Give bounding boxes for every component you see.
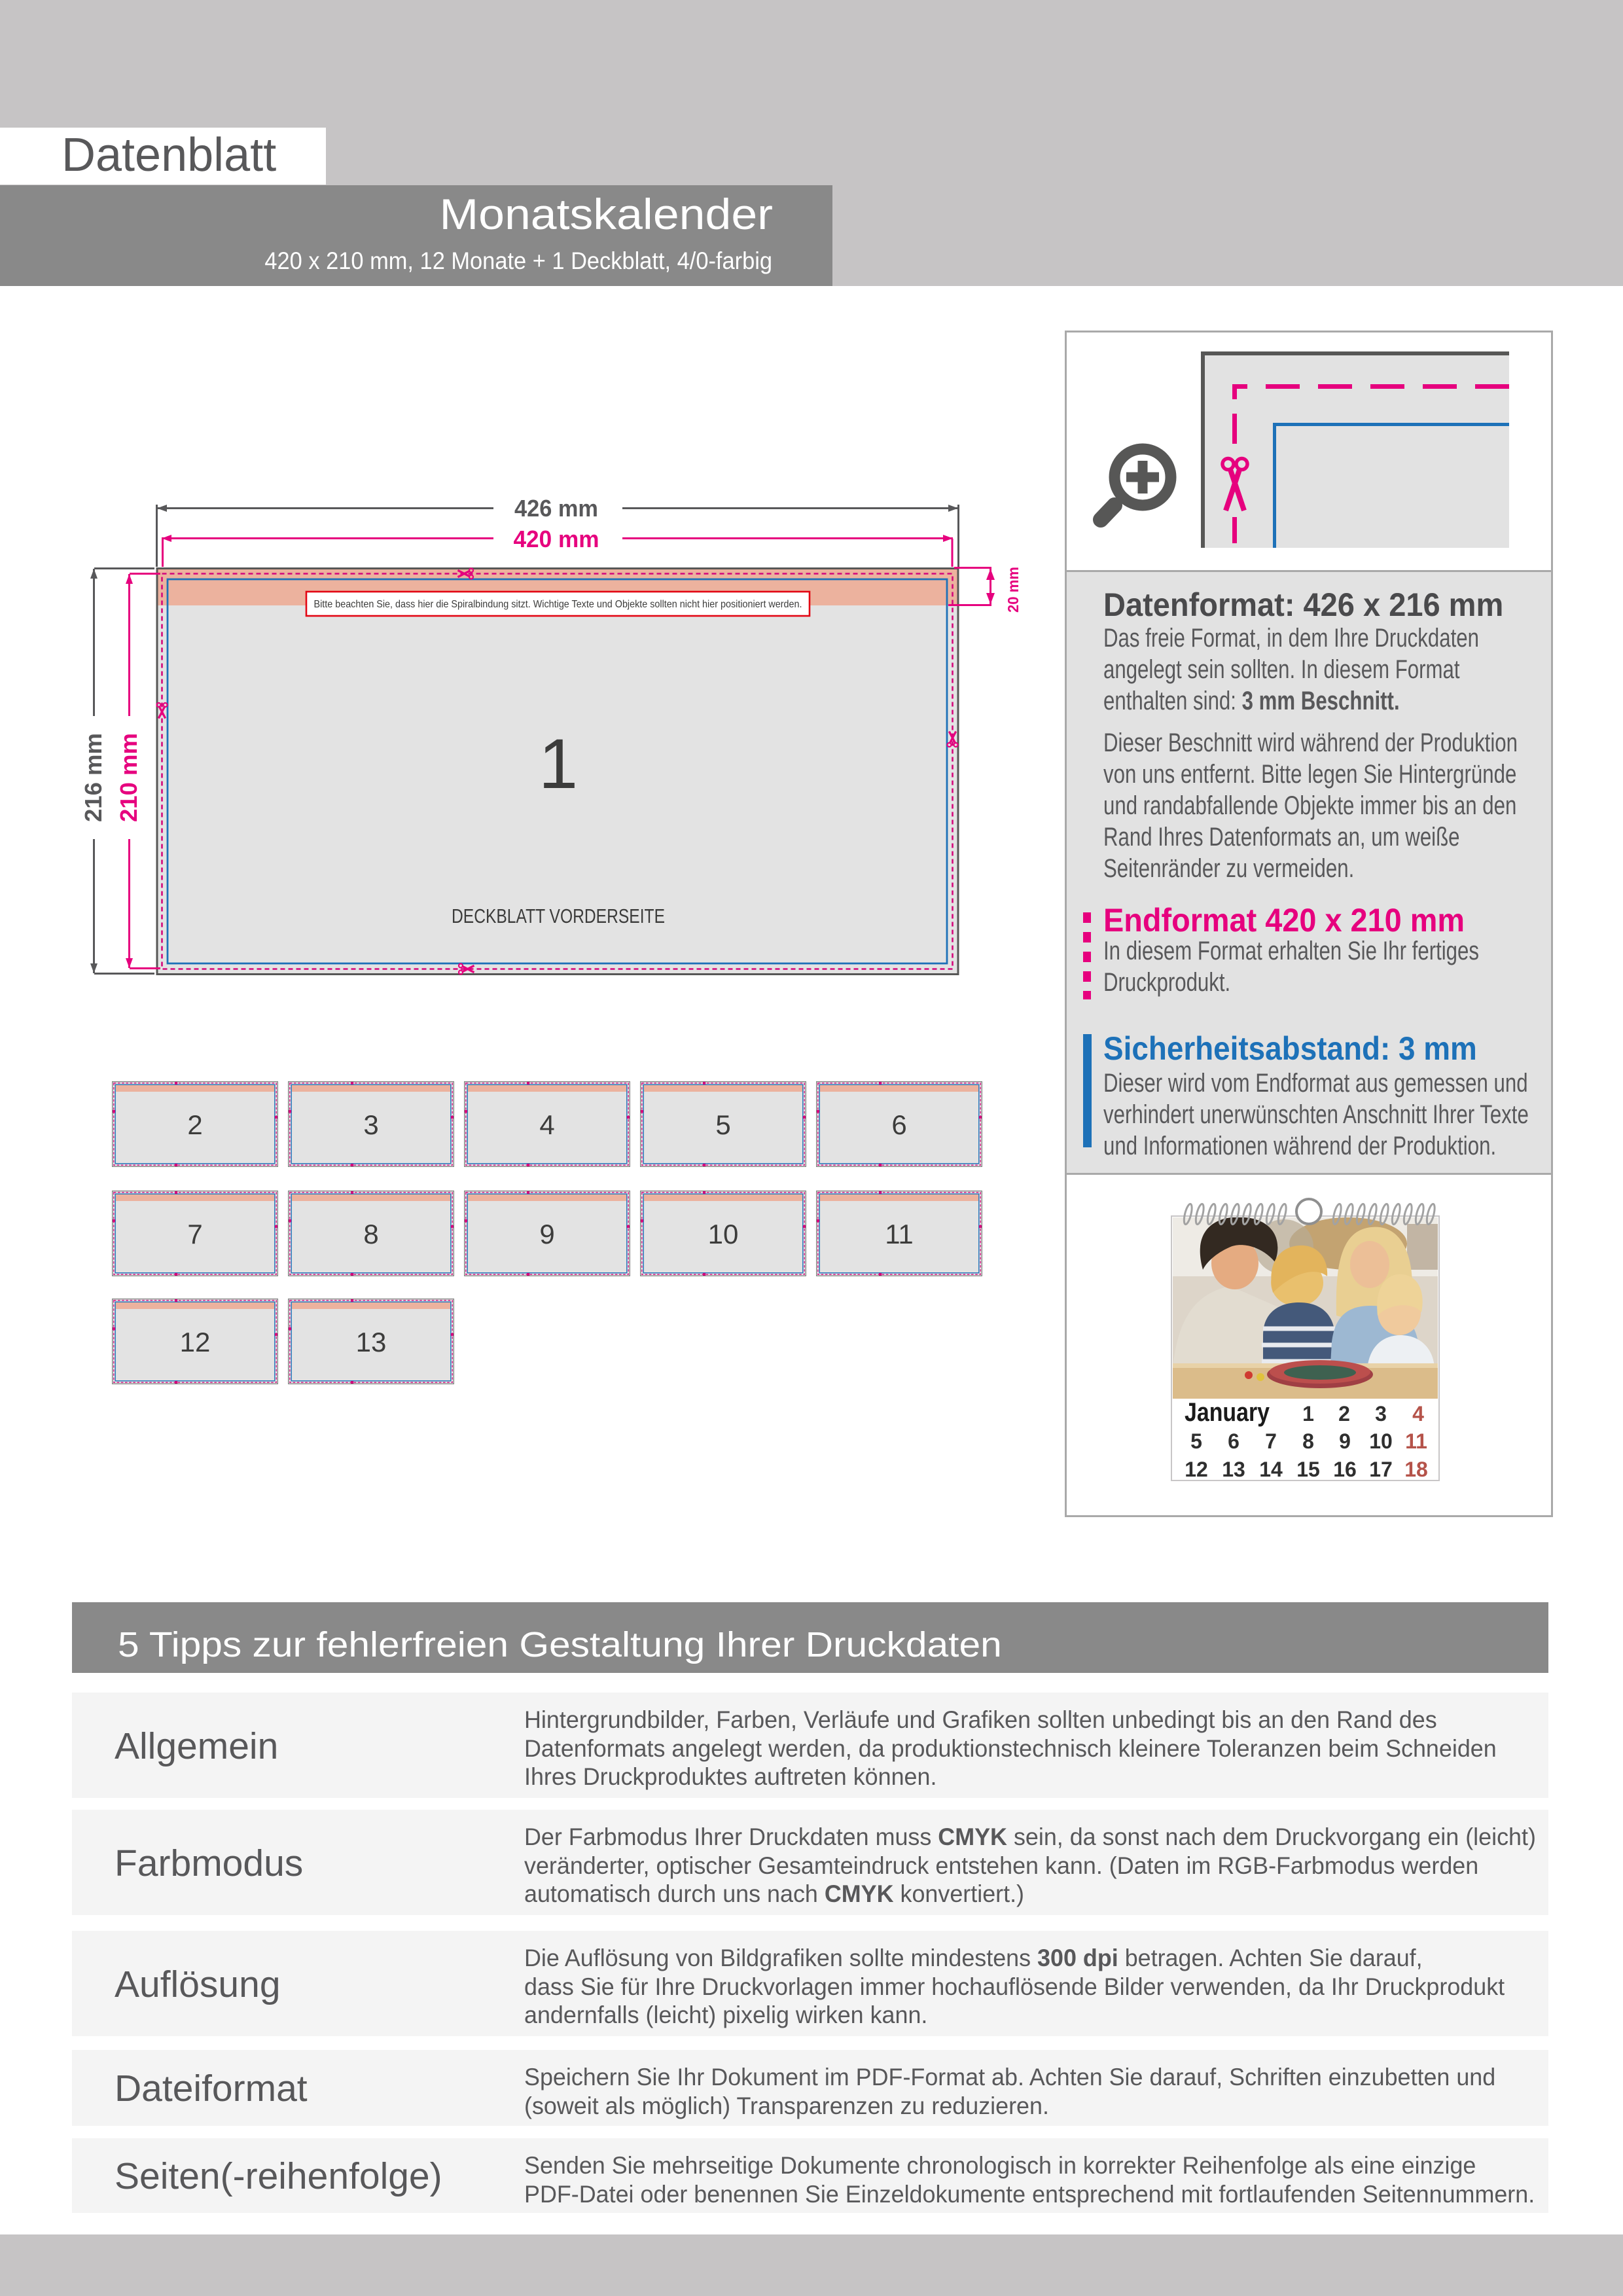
svg-text:9: 9 [1339,1429,1351,1453]
svg-text:10: 10 [708,1219,739,1249]
svg-text:20 mm: 20 mm [1005,567,1022,613]
svg-text:7: 7 [187,1219,202,1249]
svg-text:6: 6 [1228,1429,1240,1453]
svg-text:8: 8 [1302,1429,1314,1453]
svg-text:13: 13 [1222,1458,1245,1481]
svg-text:1: 1 [1302,1402,1314,1426]
svg-text:1: 1 [539,724,578,803]
svg-text:4: 4 [1412,1402,1424,1426]
svg-text:7: 7 [1265,1429,1277,1453]
svg-text:16: 16 [1333,1458,1357,1481]
svg-text:426 mm: 426 mm [514,495,598,522]
svg-text:3: 3 [363,1109,378,1140]
svg-text:10: 10 [1369,1429,1393,1453]
svg-text:January: January [1185,1398,1270,1427]
svg-text:216 mm: 216 mm [80,733,107,822]
svg-text:18: 18 [1404,1458,1428,1481]
svg-text:2: 2 [1338,1402,1350,1426]
svg-text:Bitte beachten Sie, dass hier: Bitte beachten Sie, dass hier die Spiral… [314,599,802,610]
svg-text:8: 8 [363,1219,378,1249]
svg-text:12: 12 [1185,1458,1208,1481]
svg-text:17: 17 [1369,1458,1393,1481]
svg-text:4: 4 [539,1109,554,1140]
svg-text:9: 9 [539,1219,554,1249]
svg-text:420 mm: 420 mm [514,526,599,552]
svg-text:11: 11 [885,1219,914,1249]
svg-text:2: 2 [187,1109,202,1140]
svg-text:6: 6 [891,1109,906,1140]
svg-text:3: 3 [1375,1402,1387,1426]
svg-text:13: 13 [356,1327,387,1357]
svg-text:5: 5 [1190,1429,1202,1453]
svg-text:210 mm: 210 mm [115,733,142,822]
svg-text:15: 15 [1296,1458,1320,1481]
svg-text:14: 14 [1259,1458,1283,1481]
svg-text:DECKBLATT VORDERSEITE: DECKBLATT VORDERSEITE [452,905,665,927]
svg-text:5: 5 [715,1109,730,1140]
svg-text:11: 11 [1405,1429,1427,1453]
svg-text:12: 12 [180,1327,211,1357]
